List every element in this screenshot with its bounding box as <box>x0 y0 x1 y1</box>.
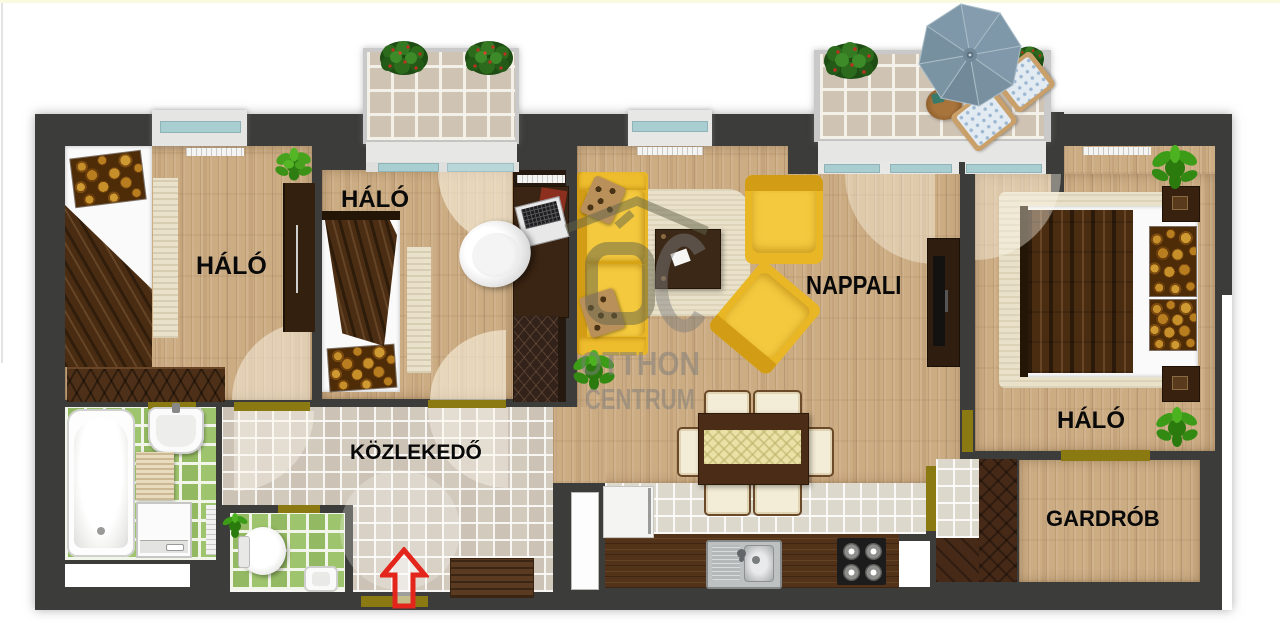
svg-text:CENTRUM: CENTRUM <box>585 384 695 416</box>
svg-text:OTTHON: OTTHON <box>580 345 700 382</box>
